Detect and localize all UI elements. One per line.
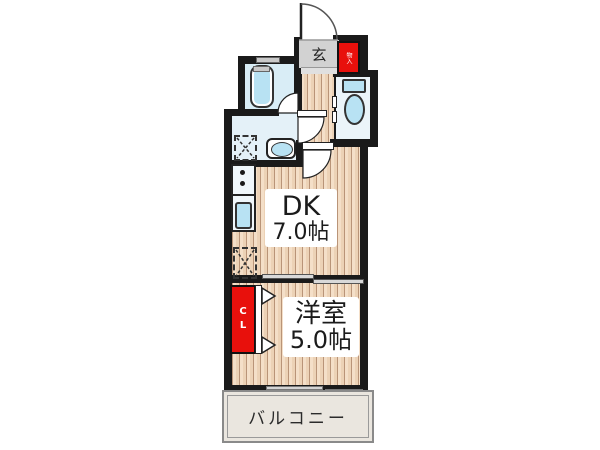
- genkan-step: [301, 67, 338, 74]
- wash-basin-bowl-icon: [271, 142, 293, 157]
- kitchen-counter-divider: [232, 194, 255, 196]
- toilet-tank-icon: [342, 79, 366, 93]
- balcony-label: バルコニー: [224, 392, 372, 441]
- stove-burner-icon: [240, 181, 245, 186]
- dk-room-label: DK 7.0帖: [265, 189, 337, 247]
- bedroom-room-label: 洋室 5.0帖: [283, 297, 359, 357]
- toilet-bowl-icon: [344, 94, 365, 125]
- washing-machine-x-icon: [236, 137, 255, 159]
- genkan-area: 玄: [299, 40, 339, 68]
- bedroom-size-text: 5.0帖: [290, 328, 352, 354]
- dk-door-swing-icon: [301, 148, 337, 182]
- entrance-door-icon: [297, 2, 343, 42]
- wall-bath-washroom-divider: [224, 109, 279, 116]
- bath-window-icon: [256, 57, 280, 63]
- refrigerator-x-icon: [235, 249, 255, 277]
- storage-box: 物入: [337, 41, 360, 74]
- floorplan-canvas: 玄 物入: [0, 0, 600, 450]
- closet-door-arrow-icon: [261, 287, 277, 305]
- kitchen-sink-icon: [235, 202, 252, 229]
- bath-counter-icon: [253, 66, 270, 72]
- sliding-door-panel: [262, 274, 314, 279]
- toilet-door-mark: [332, 111, 337, 123]
- storage-label: 物入: [339, 43, 358, 72]
- dk-name-text: DK: [282, 192, 321, 221]
- wash-basin-icon: [266, 138, 296, 159]
- sliding-door-panel: [313, 279, 364, 284]
- bedroom-name-text: 洋室: [295, 300, 347, 328]
- stove-burner-icon: [240, 170, 245, 175]
- refrigerator-space-icon: [233, 247, 257, 279]
- dk-size-text: 7.0帖: [273, 221, 330, 245]
- wall-toilet-right: [370, 70, 378, 147]
- closet-door-arrow-icon: [261, 336, 277, 354]
- wall-toilet-bottom: [330, 139, 378, 147]
- genkan-label: 玄: [311, 44, 326, 65]
- toilet-door-mark: [332, 96, 337, 108]
- wall-right-outer: [360, 147, 368, 393]
- closet-box: CL: [230, 285, 256, 354]
- washing-machine-space-icon: [234, 135, 257, 161]
- wall-bath-left: [238, 56, 245, 116]
- wall-storage-right: [360, 35, 368, 75]
- closet-label: CL: [232, 287, 254, 352]
- balcony-area: バルコニー: [222, 390, 374, 443]
